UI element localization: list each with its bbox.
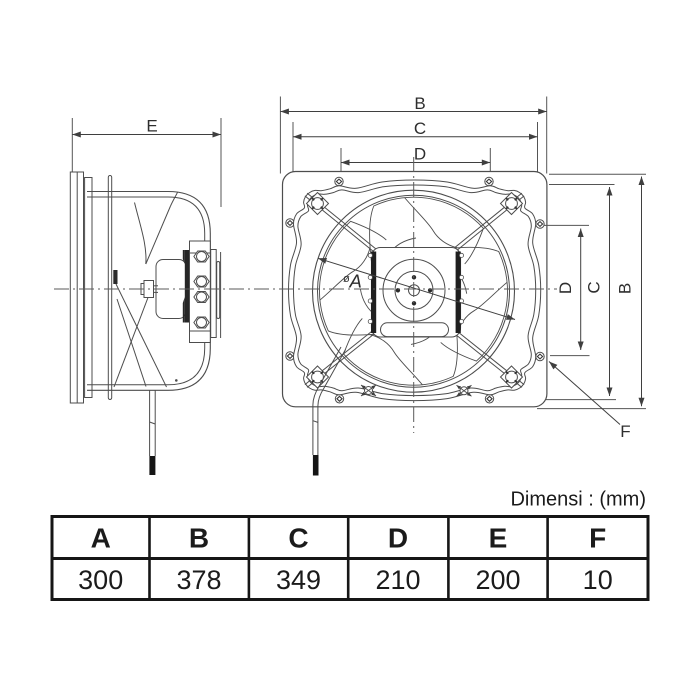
svg-text:A: A — [349, 271, 362, 292]
svg-text:10: 10 — [583, 565, 613, 595]
svg-text:B: B — [414, 94, 425, 113]
svg-text:200: 200 — [475, 565, 520, 595]
svg-text:E: E — [146, 117, 157, 136]
svg-text:D: D — [388, 523, 408, 554]
svg-text:C: C — [288, 523, 308, 554]
svg-text:D: D — [556, 282, 575, 294]
svg-text:B: B — [189, 523, 209, 554]
svg-text:C: C — [414, 119, 426, 138]
svg-text:B: B — [616, 283, 635, 294]
svg-text:C: C — [585, 281, 604, 293]
svg-text:F: F — [589, 523, 606, 554]
svg-text:210: 210 — [375, 565, 420, 595]
svg-text:F: F — [620, 422, 630, 441]
svg-text:349: 349 — [276, 565, 321, 595]
svg-text:A: A — [91, 523, 111, 554]
svg-text:E: E — [489, 523, 508, 554]
svg-text:D: D — [414, 145, 426, 164]
svg-text:378: 378 — [176, 565, 221, 595]
svg-text:300: 300 — [78, 565, 123, 595]
svg-text:Dimensi : (mm): Dimensi : (mm) — [510, 489, 646, 511]
